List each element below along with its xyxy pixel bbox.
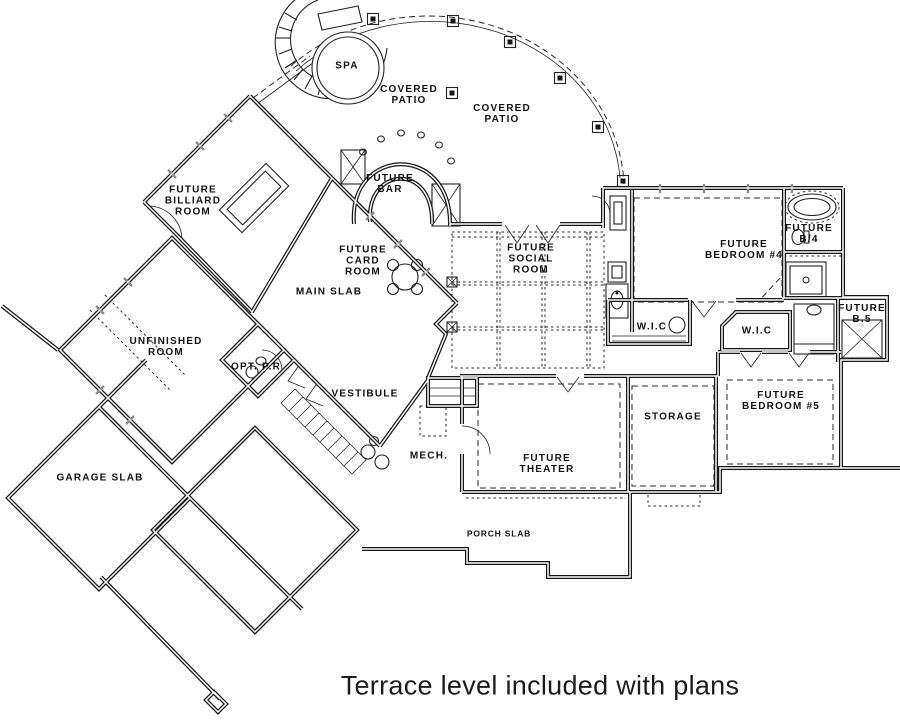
room-label-covered-patio-1: COVERED PATIO	[380, 84, 438, 106]
shower-b4	[786, 262, 826, 298]
room-label-future-bedroom-5: FUTURE BEDROOM #5	[742, 390, 820, 412]
room-label-garage-slab: GARAGE SLAB	[56, 473, 143, 484]
room-label-spa: SPA	[335, 61, 358, 72]
room-label-main-slab: MAIN SLAB	[296, 287, 362, 298]
room-label-vestibule: VESTIBULE	[332, 389, 399, 400]
room-label-future-social-room: FUTURE SOCIAL ROOM	[507, 243, 555, 276]
room-label-future-bar: FUTURE BAR	[366, 173, 414, 195]
floor-plan: SPA COVERED PATIO COVERED PATIO FUTURE B…	[0, 0, 900, 722]
bathtub-b4	[785, 191, 839, 223]
room-label-opt-pr: OPT. P.R	[231, 362, 281, 373]
covered-patio-arc	[253, 16, 624, 184]
room-label-wic-2: W.I.C	[742, 326, 772, 337]
room-label-future-card-room: FUTURE CARD ROOM	[339, 245, 387, 278]
landing-steps	[430, 388, 475, 396]
billiard-table	[219, 163, 288, 232]
room-label-future-b5: FUTURE B.5	[838, 303, 886, 325]
room-label-future-b4: FUTURE B/4	[785, 223, 833, 245]
room-label-covered-patio-2: COVERED PATIO	[473, 103, 531, 125]
caption: Terrace level included with plans	[341, 671, 740, 702]
room-label-unfinished-room: UNFINISHED ROOM	[129, 336, 202, 358]
room-label-future-billiard-room: FUTURE BILLIARD ROOM	[165, 185, 221, 218]
room-label-storage: STORAGE	[644, 412, 702, 423]
room-label-future-bedroom-4: FUTURE BEDROOM #4	[705, 239, 783, 261]
bath-b5-fixtures	[794, 304, 834, 354]
staircase	[281, 389, 366, 474]
room-label-future-theater: FUTURE THEATER	[520, 453, 575, 475]
room-label-wic-1: W.I.C	[637, 322, 667, 333]
room-label-porch-slab: PORCH SLAB	[467, 529, 531, 539]
floor-plan-drawing	[0, 0, 900, 722]
room-label-mech: MECH.	[410, 451, 448, 462]
shower-b5	[842, 320, 882, 358]
